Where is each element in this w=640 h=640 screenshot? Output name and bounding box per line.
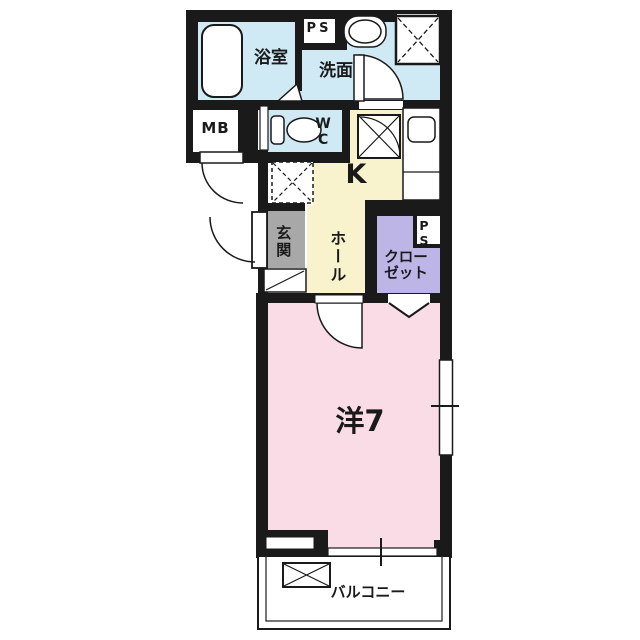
washroom-label: 洗面: [308, 62, 364, 80]
room-door-leaf: [315, 295, 363, 303]
kitchen-sink: [408, 117, 435, 142]
kitchen-label: K: [334, 160, 378, 189]
low-window-slot: [266, 537, 314, 549]
toilet-tank: [271, 116, 284, 144]
closet-label-line2: ゼット: [374, 267, 438, 283]
room-side-window: [440, 360, 453, 455]
wall-entrance-top: [262, 203, 305, 211]
wall-left-lower: [256, 303, 268, 558]
wc-label: WC: [315, 109, 330, 155]
meter-box-door-leaf: [200, 152, 243, 163]
bathtub: [202, 25, 242, 97]
wall-right-upper: [440, 10, 452, 362]
wall-closet-top: [365, 200, 452, 216]
meter-box-label: MB: [193, 120, 238, 136]
entrance-label: 玄関: [275, 214, 291, 270]
pipe-space-top-label: PS: [302, 22, 336, 36]
entrance-door-leaf: [252, 212, 267, 268]
closet-door-gap: [388, 294, 430, 303]
hall-label: ホール: [328, 226, 345, 288]
pipe-space-closet-label: PS: [417, 218, 431, 246]
closet-label: クロー ゼット: [374, 251, 438, 282]
balcony-label: バルコニー: [316, 584, 420, 600]
washroom-door-gap: [359, 101, 403, 109]
floor-plan-drawing: [0, 0, 640, 640]
wc-door-leaf: [260, 106, 268, 150]
sink-bowl: [349, 20, 381, 43]
meter-box-door-swing: [202, 163, 243, 203]
bathroom-label: 浴室: [246, 49, 296, 67]
entrance-door-swing: [210, 217, 255, 262]
wall-wc-right: [342, 104, 350, 160]
balcony-sliding-door: [328, 548, 437, 556]
closet-label-line1: クロー: [374, 251, 438, 267]
western-room-label: 洋7: [318, 406, 402, 437]
wall-left-upper: [186, 10, 198, 110]
floor-plan: 浴室 PS 洗面 WC MB K 玄関 ホール クロー ゼット PS 洋7 バル…: [0, 0, 640, 640]
